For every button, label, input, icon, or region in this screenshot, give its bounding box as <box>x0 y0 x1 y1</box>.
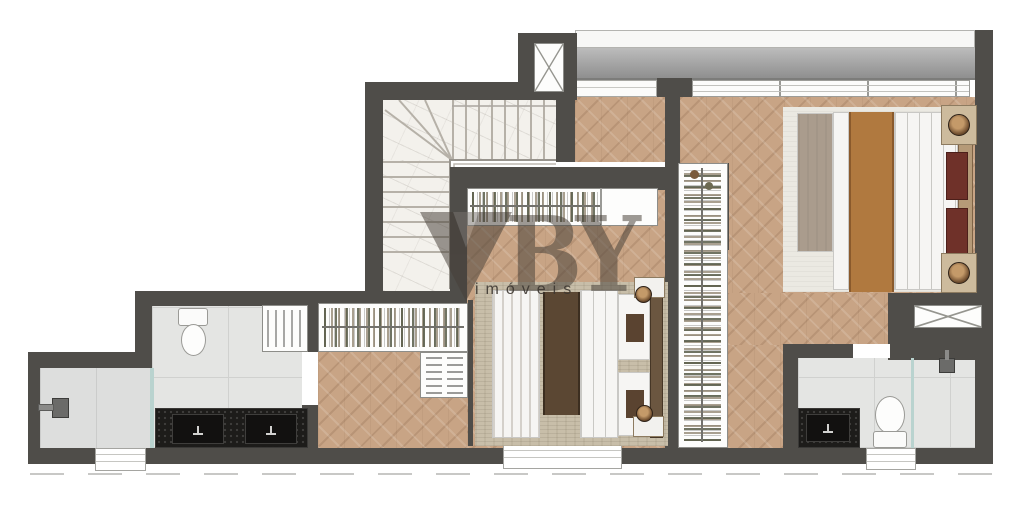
shower-arm <box>38 404 54 411</box>
faucet-icon <box>197 426 199 435</box>
duct-shaft-top <box>534 43 564 92</box>
watermark-subtitle: imóveis <box>475 281 578 299</box>
hallway-window <box>573 80 657 97</box>
window-bathroom-right <box>866 448 916 470</box>
bedroom-right-bed-throw <box>849 112 894 292</box>
wall-closet-thin-panel <box>468 300 473 446</box>
towel-stack <box>267 310 303 347</box>
bedroom-right-pillow-bottom <box>946 208 968 256</box>
closet-vertical-rail <box>701 168 703 442</box>
terrace-slab <box>575 48 975 80</box>
wall-bathroom-right-side <box>783 344 798 448</box>
hallway-floor <box>575 97 665 162</box>
shaft-x-icon <box>535 44 563 91</box>
wall-stair-hall-divider <box>556 95 575 162</box>
shower-head-icon <box>939 358 955 373</box>
window-bathroom-left <box>95 448 146 471</box>
door-opening-bathroom-right <box>853 344 890 358</box>
projection-dashed-line <box>30 473 993 475</box>
shower-glass-left <box>150 368 154 448</box>
bedroom-middle-pillow-accent-top <box>626 314 644 342</box>
faucet-icon <box>827 424 829 433</box>
wall-bedroom-middle-top <box>450 167 672 190</box>
bedroom-middle-lamp-bottom <box>636 405 653 422</box>
bedroom-right-bed-foot-blanket <box>797 113 833 252</box>
shelf-folded-stack-right <box>447 356 463 394</box>
wall-left-stair <box>365 82 383 306</box>
faucet-icon <box>270 426 272 435</box>
shower-pipe <box>945 350 949 360</box>
shaft-x-icon <box>915 306 981 327</box>
bedroom-right-bed-sheet <box>833 112 849 290</box>
terrace-parapet <box>575 30 975 48</box>
toilet-right-bowl <box>875 396 905 434</box>
bedroom-right-lamp-top <box>948 114 970 136</box>
window-bedroom-middle <box>503 444 622 469</box>
bedroom-right-pillow-top <box>946 152 968 200</box>
bedroom-right-entry-nook <box>728 345 783 448</box>
bedroom-middle-lamp-top <box>635 286 652 303</box>
shower-head-icon <box>52 398 69 418</box>
bedroom-right-window <box>692 80 970 97</box>
wall-bathroom-right-top <box>783 344 853 358</box>
duct-shaft-right <box>914 305 982 328</box>
bedroom-right-lamp-bottom <box>948 262 970 284</box>
wall-stub-top <box>657 78 692 97</box>
wall-shower-step <box>28 352 152 368</box>
shower-glass-right <box>911 358 914 448</box>
bedroom-right-floor-extension <box>728 293 890 345</box>
toilet-left-bowl <box>181 324 206 356</box>
closet-vertical-hat-2 <box>705 182 713 190</box>
wall-top-left <box>365 82 518 100</box>
floor-plan: BY imóveis <box>0 0 1024 511</box>
door-opening-bathroom-left <box>302 352 318 405</box>
shelf-folded-stack-left <box>426 356 442 394</box>
wall-outer-right <box>975 30 993 464</box>
toilet-right-tank <box>873 431 907 448</box>
closet-vertical-hat <box>690 170 699 179</box>
closet-left-rail <box>322 326 464 328</box>
